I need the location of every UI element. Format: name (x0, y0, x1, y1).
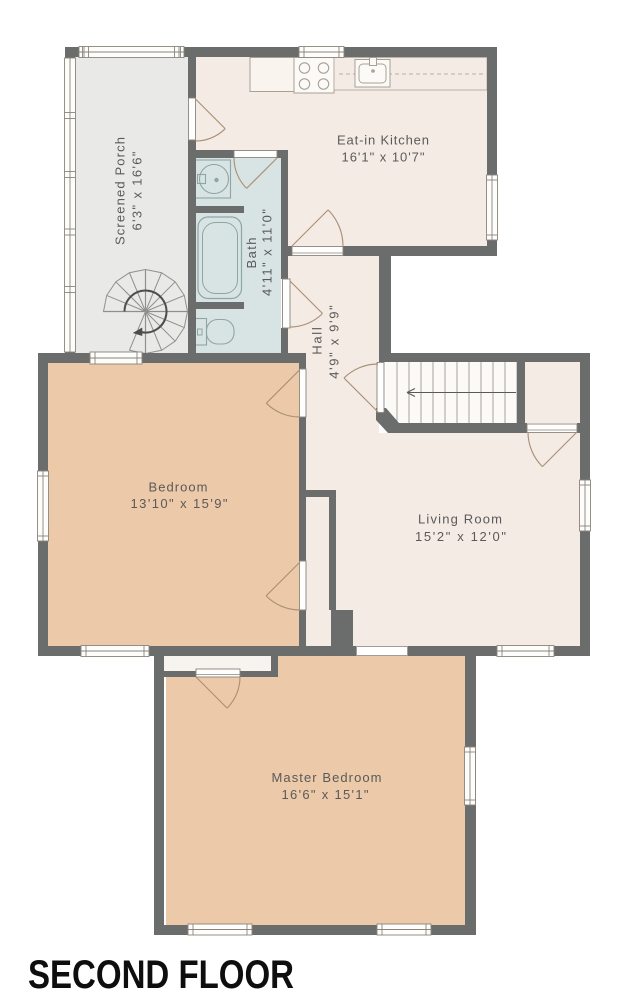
svg-text:6'3" x 16'6": 6'3" x 16'6" (130, 151, 145, 230)
svg-text:SECOND FLOOR: SECOND FLOOR (28, 953, 294, 997)
svg-text:Bath: Bath (244, 238, 259, 269)
svg-text:Living Room: Living Room (418, 512, 502, 527)
svg-text:15'2" x 12'0": 15'2" x 12'0" (415, 529, 506, 544)
svg-text:Bedroom: Bedroom (149, 480, 208, 495)
svg-text:Eat-in Kitchen: Eat-in Kitchen (337, 133, 429, 148)
svg-text:4'9" x 9'9": 4'9" x 9'9" (327, 305, 342, 379)
svg-text:13'10" x 15'9": 13'10" x 15'9" (131, 496, 228, 511)
svg-text:4'11" x 11'0": 4'11" x 11'0" (260, 209, 275, 296)
svg-text:Master Bedroom: Master Bedroom (272, 770, 382, 785)
svg-text:16'1" x 10'7": 16'1" x 10'7" (342, 150, 425, 165)
svg-text:Screened Porch: Screened Porch (113, 137, 128, 245)
svg-text:16'6" x 15'1": 16'6" x 15'1" (282, 787, 369, 802)
